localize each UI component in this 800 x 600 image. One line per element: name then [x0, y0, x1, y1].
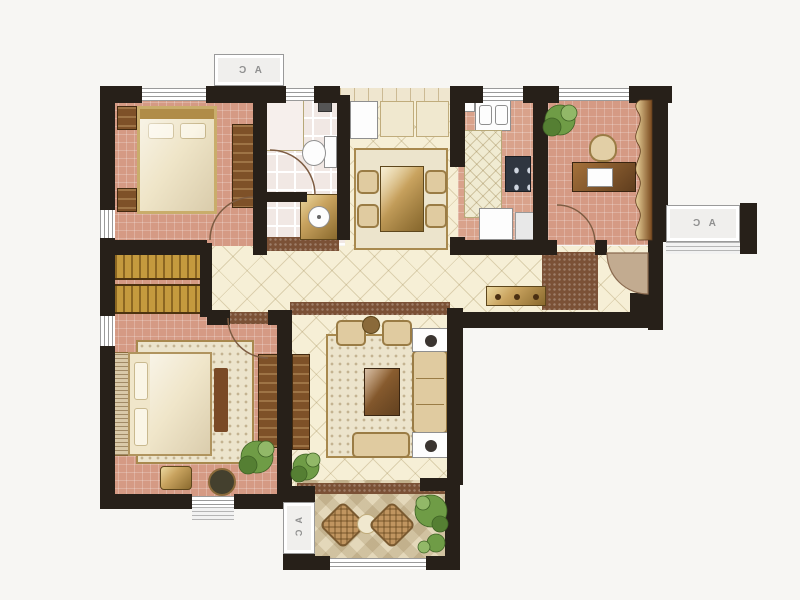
nightstand: [117, 106, 137, 130]
entry-foyer-paving: [542, 252, 598, 310]
wall-segment: [447, 308, 463, 485]
wall-segment: [595, 240, 607, 255]
kitchen-counter: [464, 130, 502, 218]
window-hatch: [192, 507, 234, 520]
lamp-table: [412, 432, 448, 458]
armchair: [382, 320, 412, 346]
window: [330, 558, 426, 569]
console-knob: [495, 294, 501, 300]
duvet: [150, 354, 210, 454]
bed-double: [128, 352, 212, 456]
duvet: [140, 119, 214, 211]
pillow: [134, 362, 148, 400]
sideboard: [350, 101, 378, 139]
wall-segment: [206, 86, 286, 103]
wall-segment: [630, 293, 663, 313]
table-sheen: [365, 369, 399, 415]
wall-segment: [283, 554, 315, 570]
toilet-bowl: [302, 140, 326, 166]
kitchen-appliance: [479, 208, 513, 240]
wardrobe: [232, 124, 254, 208]
sink-basin: [495, 105, 508, 125]
wall-segment: [115, 240, 207, 255]
ac-platform-right: A C: [666, 205, 740, 242]
ac-label: A C: [690, 218, 716, 229]
wall-segment: [100, 238, 115, 316]
wall-segment: [277, 310, 292, 496]
window: [100, 210, 115, 238]
coffee-table: [364, 368, 400, 416]
ac-platform-balcony: A C: [283, 502, 315, 554]
living-hall-threshold: [290, 302, 450, 315]
closet-cabinet: [113, 284, 207, 314]
wall-segment: [100, 494, 192, 509]
dining-window-band: [340, 88, 450, 101]
cabinet-panel: [416, 101, 449, 137]
cooktop: [505, 156, 531, 192]
console-knob: [514, 294, 520, 300]
sofa: [412, 350, 448, 434]
vanity-sink: [308, 206, 330, 228]
sofa-cushion-line: [416, 378, 444, 379]
wall-segment: [420, 478, 450, 491]
lamp: [425, 335, 437, 347]
kitchen-sink: [475, 99, 511, 131]
tv-cabinet-master: [258, 354, 278, 448]
wall-segment: [253, 95, 267, 255]
dining-chair: [425, 170, 447, 194]
window: [100, 316, 115, 346]
nightstand: [117, 188, 137, 212]
wall-segment: [450, 240, 543, 255]
window: [483, 88, 523, 101]
dining-table: [380, 166, 424, 232]
entry-console: [486, 286, 546, 306]
sink-drain: [317, 215, 321, 219]
tv-cabinet-living: [292, 354, 310, 450]
stool: [160, 466, 192, 490]
lamp: [425, 440, 437, 452]
wall-segment: [450, 312, 663, 328]
sofa-cushion-line: [416, 404, 444, 405]
window: [559, 88, 629, 101]
wall-segment: [450, 95, 465, 167]
wall-segment: [283, 486, 315, 502]
window: [286, 88, 314, 101]
cabinet-panel: [380, 101, 414, 137]
wall-segment: [533, 95, 548, 240]
wall-segment: [100, 346, 115, 496]
ac-hatch: [666, 242, 740, 254]
desk-chair: [589, 134, 617, 162]
lamp-table: [412, 328, 448, 352]
dining-chair: [425, 204, 447, 228]
headboard: [140, 109, 214, 119]
wall-segment: [200, 243, 212, 317]
bed-single: [137, 106, 217, 214]
bed-bench: [214, 368, 228, 432]
wall-segment: [740, 203, 757, 254]
desk-paper: [587, 168, 613, 187]
wall-segment: [426, 556, 460, 570]
shower-tray: [262, 99, 304, 151]
floor-vase: [208, 468, 236, 496]
window: [142, 88, 206, 101]
side-table-round: [362, 316, 380, 334]
dining-chair: [357, 170, 379, 194]
desk: [572, 162, 636, 192]
master-door-threshold: [228, 312, 270, 324]
wall-segment: [267, 192, 307, 202]
sink-basin: [479, 105, 492, 125]
pillow: [134, 408, 148, 446]
ac-label: A C: [236, 65, 262, 76]
ac-platform-top: A C: [214, 54, 284, 86]
dining-chair: [357, 204, 379, 228]
console-knob: [533, 294, 539, 300]
wall-segment: [543, 240, 557, 255]
floor-plan: A C A C A C: [0, 0, 800, 600]
wall-segment: [100, 86, 115, 210]
table-sheen: [381, 167, 423, 231]
wall-segment: [337, 95, 350, 240]
ac-label: A C: [294, 517, 304, 538]
wall-segment: [207, 310, 230, 325]
sofa-bench: [352, 432, 410, 458]
window: [192, 496, 234, 507]
